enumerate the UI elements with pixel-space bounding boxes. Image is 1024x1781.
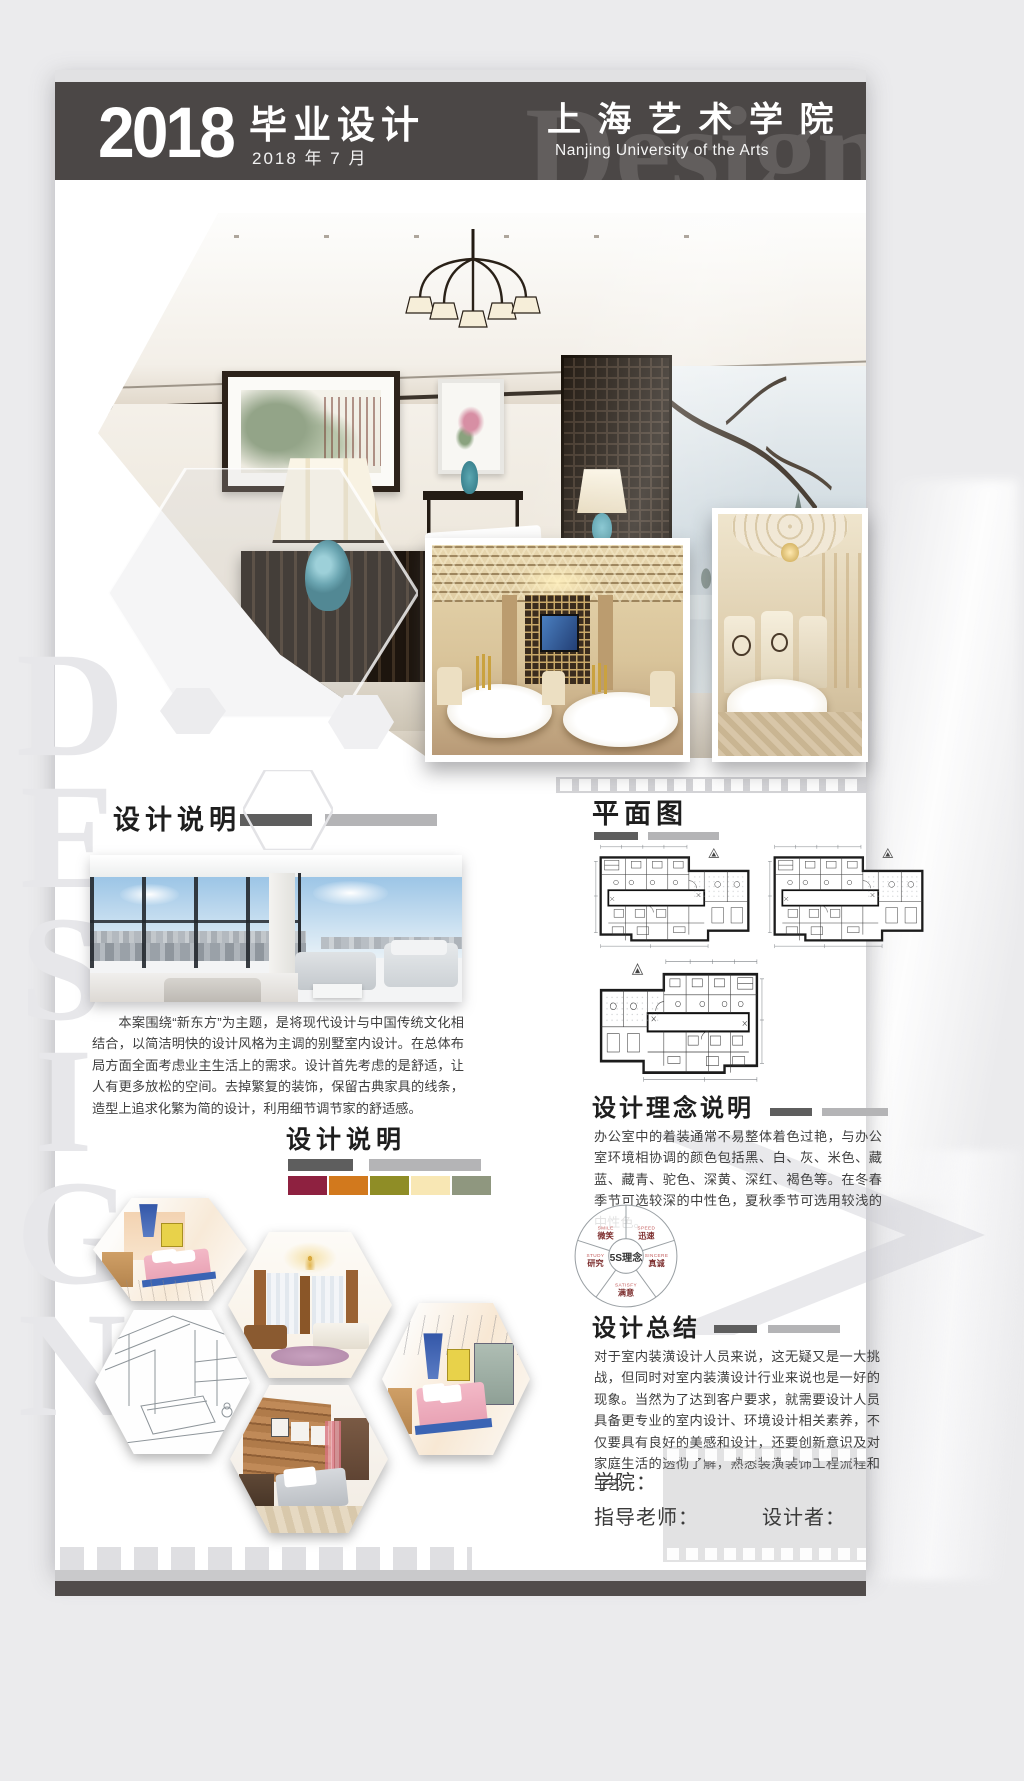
footer-film-holes-top [667,1449,866,1461]
five-s-speed-cn: 迅速 [638,1231,655,1241]
palette-swatch-2 [329,1176,368,1195]
five-s-smile-en: SMILE [598,1226,614,1231]
concept-heading: 设计理念说明 [592,1088,754,1123]
sk4-desk [239,1474,274,1510]
deco-hex-outline-2 [243,770,333,850]
sk2-bed [313,1323,369,1349]
header-bar: Design 2018 毕业设计 2018 年 7 月 上 海 艺 术 学 院 … [55,82,866,180]
concept-bar-light [822,1108,888,1116]
sk1-floorlines [93,1280,247,1301]
sk5-art [447,1349,470,1381]
dining-left-table-1 [447,684,552,739]
sk5-pillow [423,1382,447,1401]
film-strip-top-holes [560,779,862,791]
sk2-rug [271,1346,350,1366]
advisor-label: 指导老师： [594,1501,699,1530]
dining-right-medallion-1 [732,635,750,656]
dining-left-scene [432,545,683,755]
header-school-en: Nanjing University of the Arts [555,142,769,160]
poster-bottom-edge-dark [55,1581,866,1596]
bg-streak-right [848,480,1018,1200]
palette-swatch-5 [452,1176,491,1195]
plan-bar-dark [594,832,638,840]
desc1-bar-light [325,814,437,826]
cityview-photo [90,855,462,1002]
sketch-hex-bedroom-2 [230,1385,388,1533]
sketch-hex-bedroom-3 [382,1303,530,1455]
cityview-scene [90,855,462,1002]
dining-photo-right [712,508,868,762]
header-year: 2018 [98,91,233,173]
five-s-smile-cn: 微笑 [597,1231,615,1241]
dining-left-chair-2 [542,671,565,705]
five-s-center-label: 5S理念 [610,1251,644,1264]
floor-plan-3 [593,956,765,1084]
palette-swatch-4 [411,1176,450,1195]
dining-right-window [822,553,862,689]
dining-right-chair-3 [799,616,828,689]
plan-bar-light [648,832,719,840]
palette-swatch-1 [288,1176,327,1195]
school-label: 学院： [594,1466,657,1495]
poster-bottom-edge-light [55,1570,866,1581]
sk1-art [161,1223,183,1248]
sketch-hex-hall [228,1232,392,1378]
poster-top-strip [55,70,866,82]
five-s-satisfy-en: SATISFY [615,1283,637,1288]
summary-bar-dark [714,1325,757,1333]
sk5-canopy [423,1333,442,1379]
five-s-satisfy-cn: 满意 [618,1288,634,1298]
hero-spotlights [234,235,697,238]
dining-left-candelabra-2 [598,663,601,692]
palette-swatch-3 [370,1176,409,1195]
floor-plan-2 [767,842,930,950]
sketch-bedroom-3-scene [382,1303,530,1455]
sketch-hex-linework [95,1310,250,1454]
five-s-diagram: 5S理念 SMILE 微笑 SPEED 迅速 SINCERE 真诚 SATISF… [570,1200,682,1312]
film-strip-top [556,777,866,793]
sk2-chandelier [300,1247,320,1270]
cityview-table [313,984,361,997]
desc2-bar-light [369,1159,481,1171]
footer-film-holes-bottom [667,1548,866,1560]
dining-left-chair-3 [650,671,675,707]
sk5-cabinet [388,1388,412,1434]
sketch-linework-lines [95,1310,250,1454]
header-school-cn: 上 海 艺 术 学 院 [547,92,838,141]
dining-photo-left [425,538,690,762]
sk4-pictures [271,1418,289,1438]
sk4-floor [230,1506,388,1533]
five-s-sincere-en: SINCERE [645,1253,669,1258]
sk4-sheets [283,1466,316,1487]
header-title: 毕业设计 [249,94,425,149]
five-s-speed-en: SPEED [637,1226,655,1231]
desc1-heading: 设计说明 [113,798,241,837]
plan-heading: 平面图 [592,792,688,831]
dining-left-chair-1 [437,667,462,705]
desc1-paragraph: 本案围绕“新东方”为主题，是将现代设计与中国传统文化相结合，以简洁明快的设计风格… [92,1012,464,1119]
sk2-column-m [300,1276,310,1334]
desc2-heading: 设计说明 [286,1120,406,1156]
sketch-hex-bedroom-1 [93,1198,247,1301]
dining-left-tv [540,614,579,652]
cityview-column [269,873,295,973]
header-date: 2018 年 7 月 [252,144,367,169]
desc2-bar-dark [288,1159,353,1171]
sk2-sofa [244,1325,287,1348]
dining-right-chandelier [781,543,798,562]
designer-label: 设计者： [762,1501,846,1530]
cityview-bed-foreground [164,978,261,1002]
five-s-sincere-cn: 真诚 [648,1258,665,1268]
hero-hex-outline [108,468,418,718]
dining-right-floor [718,712,862,756]
sketch-bedroom-2-scene [230,1385,388,1533]
poster-page: Design 2018 毕业设计 2018 年 7 月 上 海 艺 术 学 院 … [0,0,1024,1781]
five-s-study-cn: 研究 [587,1258,603,1268]
poster-reflection: 学院： 指导老师： 设计者： [55,1598,866,1738]
cityview-sofa-cushion [391,940,447,955]
dining-left-candelabra-1 [482,654,485,688]
cityview-transom [90,920,298,923]
sketch-linework-scene [95,1310,250,1454]
bottom-square-strip [60,1547,472,1570]
concept-bar-dark [770,1108,812,1116]
sketch-bedroom-1-scene [93,1198,247,1301]
five-s-study-en: STUDY [587,1253,605,1258]
floor-plan-1 [593,842,756,950]
dining-left-column-l [502,595,517,690]
dining-right-scene [718,514,862,756]
sketch-hall-scene [228,1232,392,1378]
cityview-cloud-2 [313,881,387,905]
summary-heading: 设计总结 [592,1308,700,1343]
summary-bar-light [768,1325,840,1333]
